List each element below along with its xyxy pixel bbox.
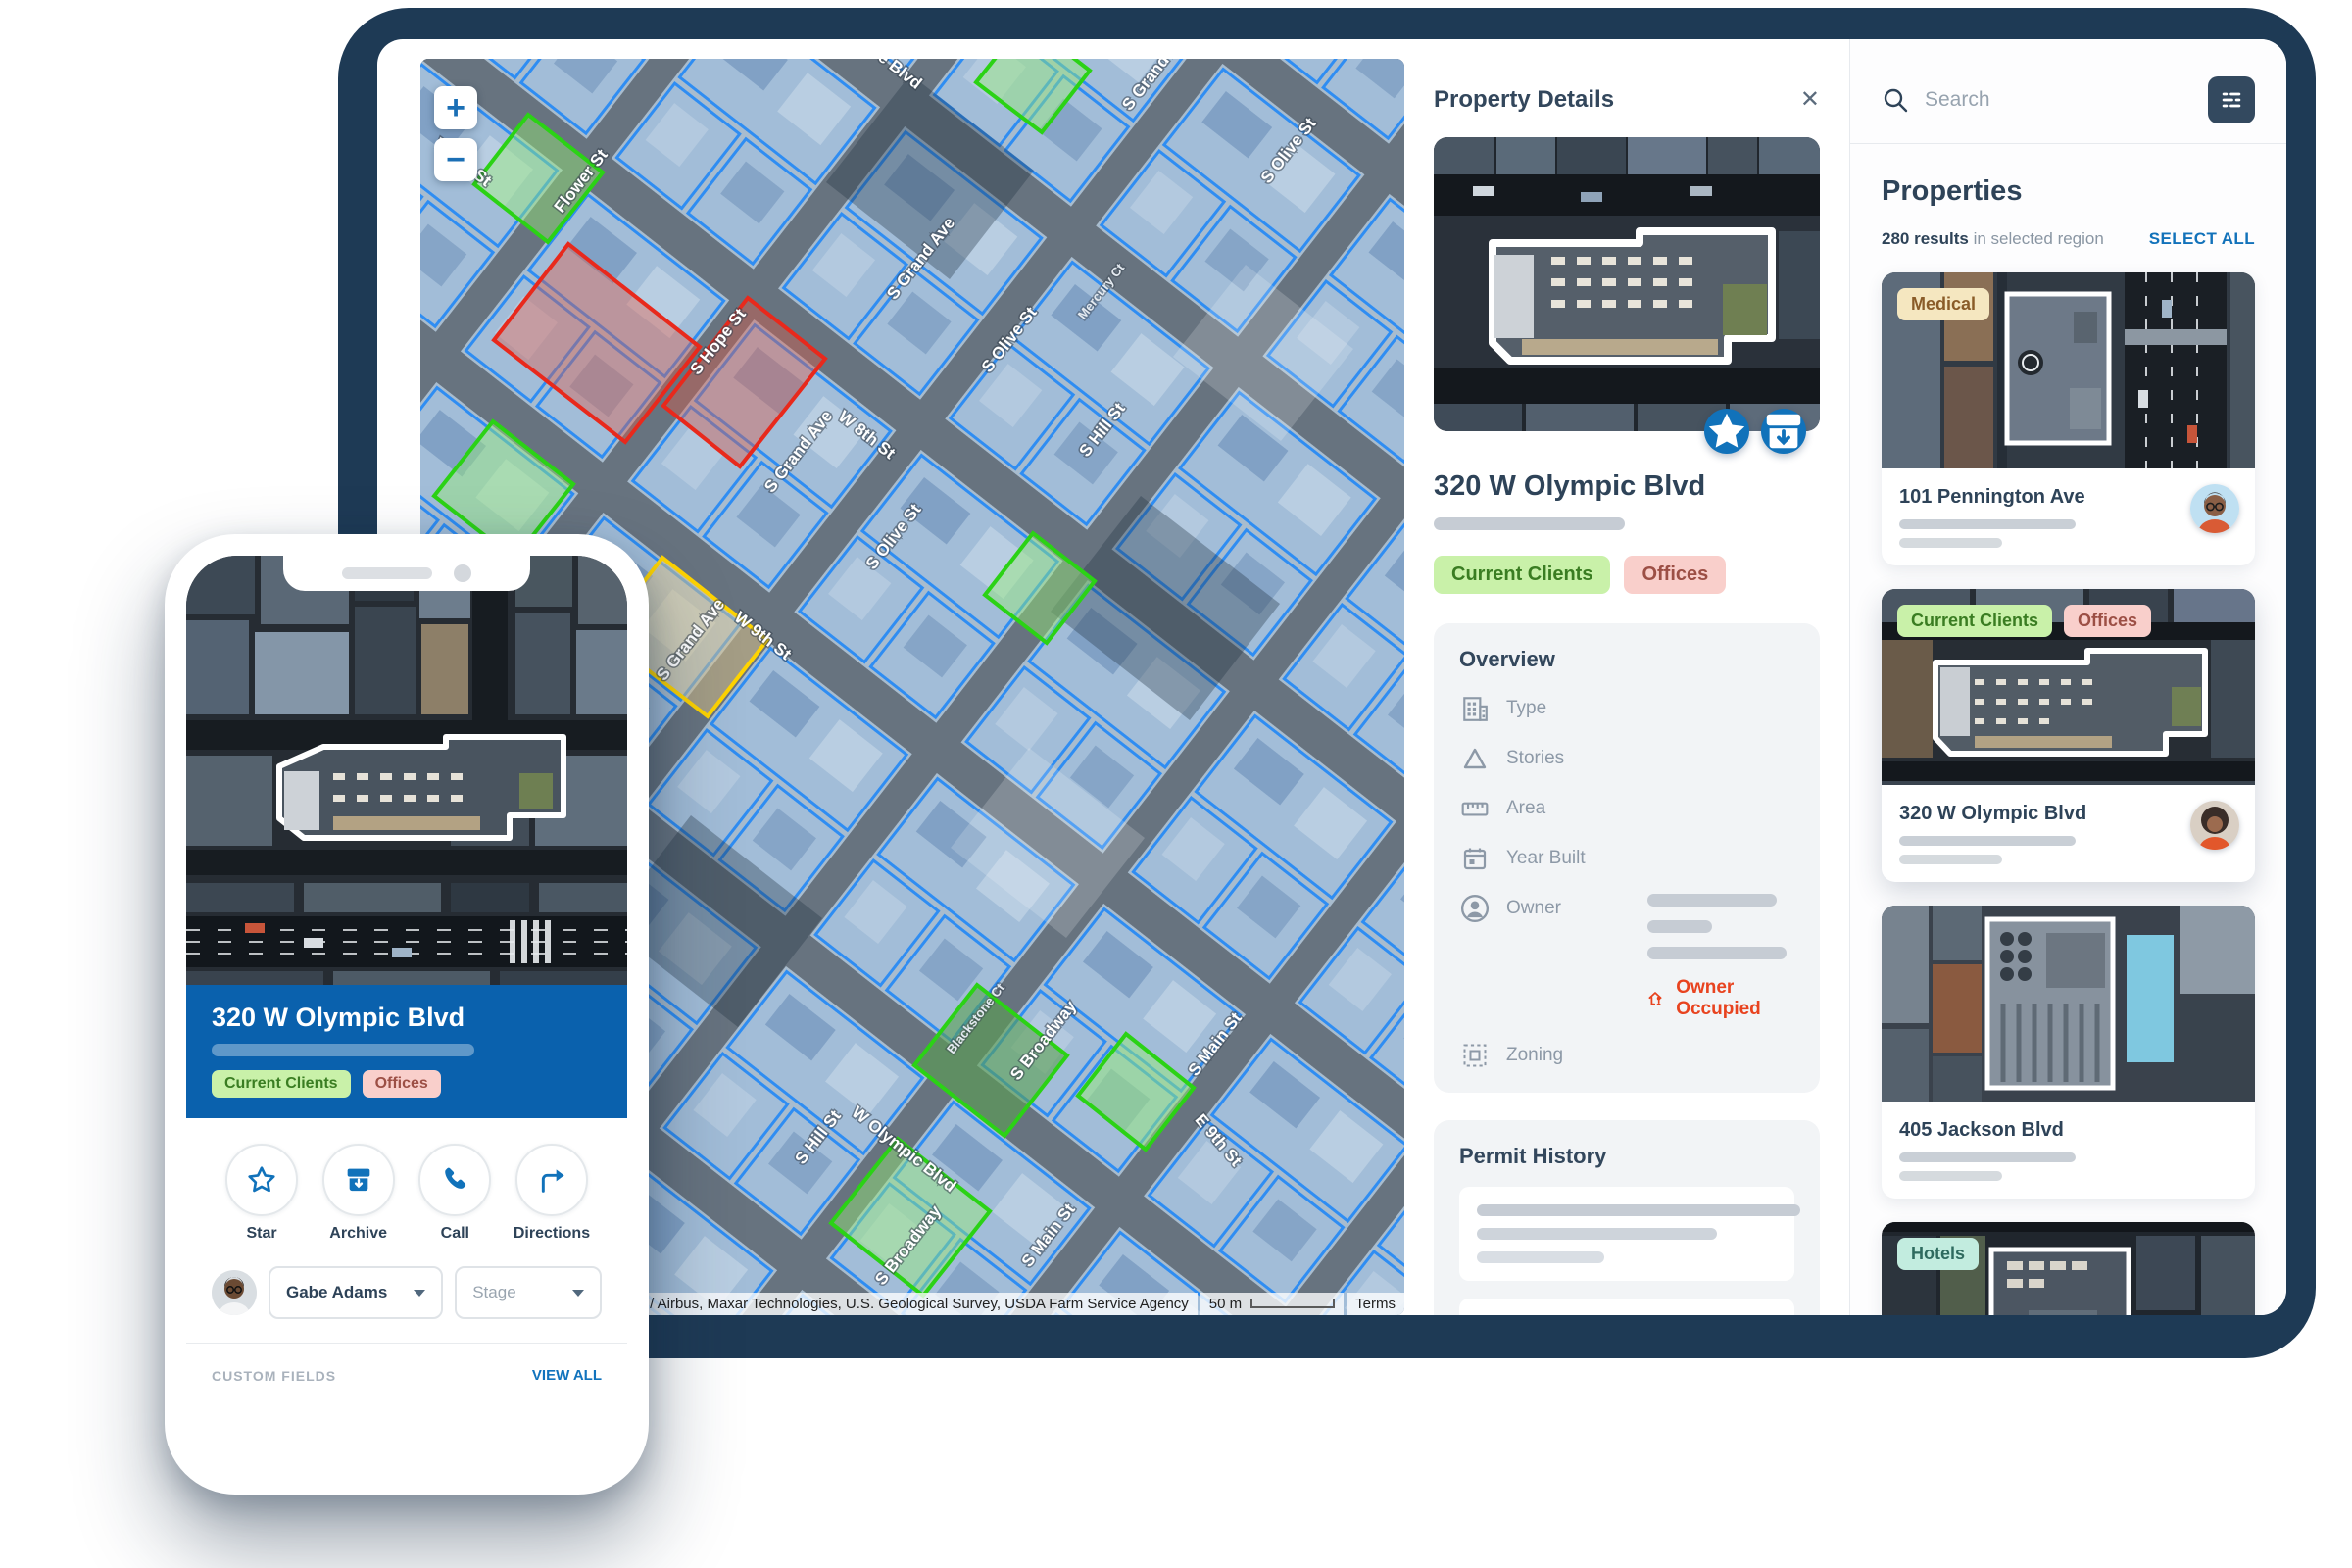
tag-medical: Medical (1897, 288, 1989, 320)
property-details-panel: Property Details ✕ (1404, 39, 1849, 1315)
phone-map-image (186, 556, 627, 985)
map-zoom-in-button[interactable]: + (434, 86, 477, 129)
assignee-avatar (212, 1270, 257, 1315)
map-scale: 50 m (1200, 1293, 1344, 1315)
card-address: 320 W Olympic Blvd (1899, 803, 2237, 825)
agent-avatar[interactable] (2190, 484, 2239, 533)
directions-action[interactable]: Directions (510, 1144, 594, 1243)
permit-item[interactable] (1459, 1187, 1794, 1281)
owner-person-icon (1459, 894, 1491, 923)
phone-address-placeholder (212, 1044, 474, 1056)
archive-action-label: Archive (329, 1225, 387, 1243)
archive-icon (1761, 284, 1806, 578)
property-photo (1434, 137, 1820, 431)
overview-label-area: Area (1506, 798, 1632, 819)
overview-label-type: Type (1506, 698, 1632, 719)
favorite-star-button[interactable] (1704, 409, 1749, 454)
card-line-placeholder (1899, 855, 2002, 864)
close-icon[interactable]: ✕ (1800, 88, 1820, 112)
page: Flower St W 8th St e Blvd S Grand Ave S … (0, 0, 2352, 1568)
app-window: Flower St W 8th St e Blvd S Grand Ave S … (377, 39, 2286, 1315)
select-all-link[interactable]: SELECT ALL (2149, 229, 2255, 249)
map-scale-bar (1250, 1299, 1335, 1308)
chevron-down-icon (414, 1290, 425, 1297)
directions-action-label: Directions (514, 1225, 590, 1243)
permit-line-placeholder (1477, 1251, 1604, 1263)
map-attribution: ©2021 , CNES / Airbus, Maxar Technologie… (540, 1293, 1404, 1315)
agent-avatar[interactable] (2190, 801, 2239, 850)
property-card-405-jackson[interactable]: 405 Jackson Blvd (1882, 906, 2255, 1199)
building-icon (1459, 694, 1491, 723)
sidebar-title: Properties (1882, 175, 2255, 208)
phone-icon (439, 1164, 470, 1196)
star-icon (246, 1164, 277, 1196)
search-input[interactable] (1925, 88, 2208, 112)
panel-title: Property Details (1434, 86, 1614, 114)
phone-camera (454, 564, 471, 582)
call-action[interactable]: Call (413, 1144, 497, 1243)
owner-occupied-icon (1647, 987, 1666, 1010)
chevron-down-icon (572, 1290, 584, 1297)
tag-offices: Offices (363, 1070, 441, 1098)
address-subline-placeholder (1434, 517, 1625, 530)
results-count-rest: in selected region (1969, 229, 2104, 248)
phone-speaker (342, 567, 432, 579)
tag-current-clients[interactable]: Current Clients (1434, 556, 1610, 594)
permit-line-placeholder (1477, 1204, 1800, 1216)
stage-placeholder: Stage (472, 1283, 515, 1302)
card-line-placeholder (1899, 519, 2076, 529)
permit-history-title: Permit History (1459, 1144, 1794, 1169)
property-card-hotels[interactable]: Hotels (1882, 1222, 2255, 1315)
overview-label-owner: Owner (1506, 898, 1632, 919)
property-card-101-pennington[interactable]: Medical 101 Pennington Ave (1882, 272, 2255, 565)
permit-item[interactable] (1459, 1298, 1794, 1315)
stories-triangle-icon (1459, 745, 1491, 772)
assignee-name: Gabe Adams (286, 1283, 387, 1302)
value-placeholder (1647, 894, 1777, 906)
overview-label-year-built: Year Built (1506, 848, 1632, 869)
card-address: 101 Pennington Ave (1899, 486, 2237, 509)
card-line-placeholder (1899, 538, 2002, 548)
call-action-label: Call (441, 1225, 469, 1243)
phone-mockup: 320 W Olympic Blvd Current Clients Offic… (165, 534, 649, 1494)
tag-current-clients: Current Clients (212, 1070, 351, 1098)
archive-button[interactable] (1761, 409, 1806, 454)
overview-card: Overview Type (1434, 623, 1820, 1093)
star-action[interactable]: Star (220, 1144, 304, 1243)
stage-select[interactable]: Stage (455, 1266, 602, 1319)
map-scale-label: 50 m (1209, 1296, 1242, 1312)
map-terms-link[interactable]: Terms (1347, 1293, 1404, 1315)
view-all-link[interactable]: VIEW ALL (532, 1367, 602, 1384)
phone-screen: 320 W Olympic Blvd Current Clients Offic… (186, 556, 627, 1473)
zoning-icon (1459, 1042, 1491, 1069)
results-count: 280 results in selected region (1882, 229, 2104, 249)
archive-action[interactable]: Archive (317, 1144, 401, 1243)
assignee-select[interactable]: Gabe Adams (269, 1266, 443, 1319)
permit-history-card: Permit History (1434, 1120, 1820, 1315)
card-line-placeholder (1899, 1171, 2002, 1181)
directions-icon (536, 1164, 567, 1196)
overview-label-zoning: Zoning (1506, 1045, 1632, 1066)
filter-button[interactable] (2208, 76, 2255, 123)
star-icon (1704, 284, 1749, 578)
ruler-icon (1459, 794, 1491, 823)
card-line-placeholder (1899, 836, 2076, 846)
value-placeholder (1647, 920, 1712, 933)
custom-fields-label: CUSTOM FIELDS (212, 1368, 336, 1384)
owner-occupied-label: Owner Occupied (1676, 977, 1794, 1020)
phone-property-address: 320 W Olympic Blvd (212, 1003, 602, 1033)
phone-notch (283, 556, 530, 591)
tag-hotels: Hotels (1897, 1238, 1979, 1270)
value-placeholder (1647, 947, 1787, 959)
permit-line-placeholder (1477, 1228, 1717, 1240)
star-action-label: Star (246, 1225, 276, 1243)
card-aerial-image (1882, 906, 2255, 1102)
phone-property-banner: 320 W Olympic Blvd Current Clients Offic… (186, 985, 627, 1118)
overview-title: Overview (1459, 647, 1794, 672)
tag-current-clients: Current Clients (1897, 605, 2052, 637)
overview-label-stories: Stories (1506, 748, 1632, 769)
map-zoom-out-button[interactable]: − (434, 138, 477, 181)
search-icon (1882, 86, 1909, 114)
filter-list-icon (2219, 87, 2244, 113)
tag-offices: Offices (2064, 605, 2151, 637)
property-card-320-olympic[interactable]: Current Clients Offices 320 W Olympic Bl… (1882, 589, 2255, 882)
card-address: 405 Jackson Blvd (1899, 1119, 2237, 1142)
card-line-placeholder (1899, 1152, 2076, 1162)
sidebar-divider (1850, 143, 2286, 144)
archive-icon (343, 1164, 374, 1196)
properties-sidebar: Properties 280 results in selected regio… (1849, 39, 2286, 1315)
calendar-icon (1459, 845, 1491, 872)
results-count-bold: 280 results (1882, 229, 1969, 248)
